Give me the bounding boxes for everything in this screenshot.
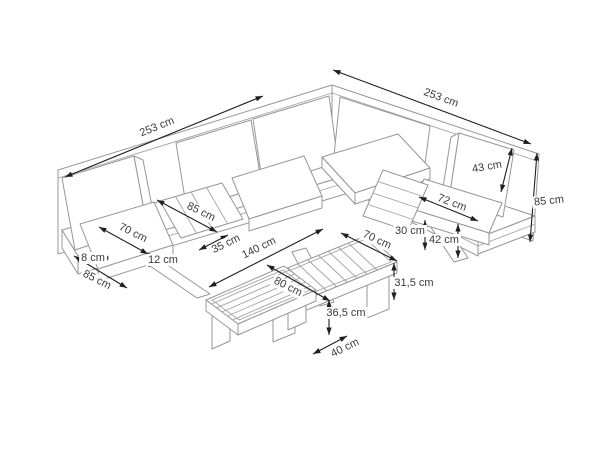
furniture-line-drawing [0, 0, 600, 450]
dimension-label-cushion-thickness: 12 cm [146, 254, 180, 266]
dimension-label-platform-height: 30 cm [393, 225, 427, 237]
dimension-label-seat-height: 42 cm [427, 234, 461, 246]
sofa-leg-left [150, 262, 210, 298]
dimension-label-table-height: 31,5 cm [392, 277, 435, 289]
bench [206, 266, 316, 349]
diagram-canvas: 253 cm 253 cm 43 cm 85 cm 72 cm 85 cm 70… [0, 0, 600, 450]
dimension-label-bench-height: 36,5 cm [324, 307, 367, 319]
dimension-label-base-frame: 8 cm [79, 252, 107, 264]
